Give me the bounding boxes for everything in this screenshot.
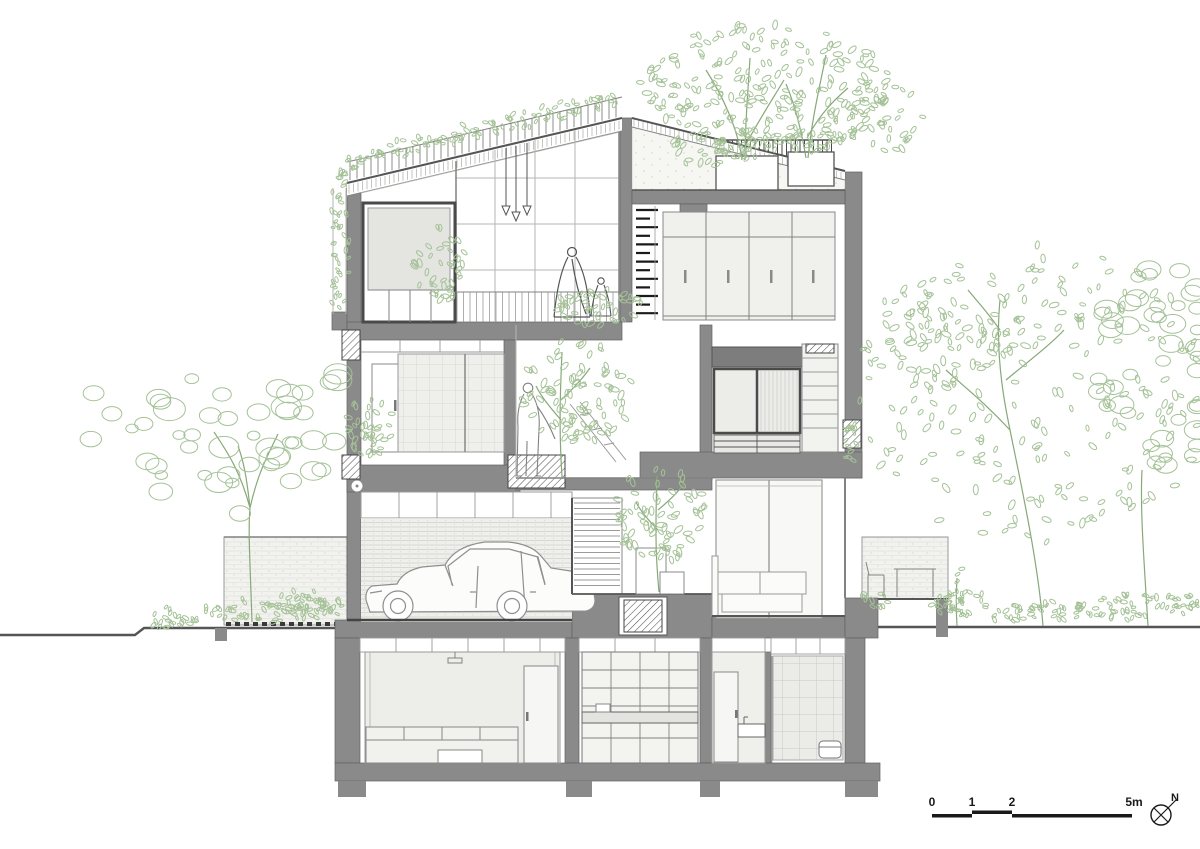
shelf-item <box>596 704 610 712</box>
door-handle <box>735 710 738 718</box>
scale-segment-3 <box>1012 814 1132 818</box>
garage-ceiling <box>361 492 572 518</box>
basement-wall-left <box>335 638 360 763</box>
basement-partition-2 <box>700 638 712 763</box>
bedroom2-ceiling-band <box>361 340 504 352</box>
planter-2 <box>788 152 834 186</box>
scale-bar: 0 1 2 5m <box>929 795 1143 818</box>
shelf-counter <box>582 712 698 723</box>
scale-label-1: 1 <box>969 795 976 809</box>
scale-label-5m: 5m <box>1125 795 1142 809</box>
right-tree-foliage <box>858 241 1200 546</box>
footing-2 <box>566 781 592 797</box>
toilet <box>819 741 841 758</box>
door-handle <box>526 712 529 721</box>
basement-partition-3 <box>765 652 771 763</box>
left-tree-foliage <box>80 364 352 521</box>
compass: N <box>1151 792 1179 825</box>
scale-label-0: 0 <box>929 795 936 809</box>
sapling-foliage <box>947 567 968 614</box>
window-frame-cut-2 <box>342 455 360 479</box>
patio-wall-right <box>862 537 948 599</box>
window-head-band <box>712 347 802 367</box>
green-roof-hatch <box>349 121 619 194</box>
skylight-cut <box>624 600 662 632</box>
scale-label-2: 2 <box>1009 795 1016 809</box>
pendant-mobiles <box>502 143 531 221</box>
door-handle <box>394 400 397 411</box>
slab-second-right <box>640 452 862 478</box>
slab-third-left <box>347 322 622 340</box>
slab-ground-right <box>712 616 845 638</box>
atrium-tree-upper-foliage <box>518 338 635 445</box>
basement-floor-slab <box>335 763 880 781</box>
tree-pot-2 <box>660 572 684 594</box>
footing-3 <box>700 781 720 797</box>
scale-segment-1 <box>932 814 972 818</box>
sofa <box>366 727 518 763</box>
sliding-panel-wall <box>398 354 504 452</box>
child-figure-outline <box>591 278 611 316</box>
basement-door-1 <box>524 666 558 763</box>
slab-ground-left <box>335 620 572 638</box>
slab-second-left <box>347 465 520 492</box>
fence-footing <box>215 628 227 641</box>
shelf-cabinet <box>802 344 838 452</box>
basement-partition-1 <box>565 638 579 763</box>
loft-window-pane <box>368 208 450 290</box>
basement <box>360 638 845 763</box>
building-section-drawing: 0 1 2 5m N <box>0 0 1200 849</box>
right-tree-trunk <box>946 290 1148 626</box>
footing-1 <box>338 781 366 797</box>
slab-notch <box>680 204 707 212</box>
window-frame-cut-1 <box>342 330 360 360</box>
basement-wall-right <box>845 638 865 763</box>
facade-cap <box>332 312 349 330</box>
footing-4 <box>845 781 878 797</box>
basement-door-2 <box>714 672 738 762</box>
ground-line-left <box>0 628 347 635</box>
scale-segment-2 <box>972 811 1012 815</box>
cabinet-cut <box>806 344 834 353</box>
slab-third-right <box>632 190 845 204</box>
window-blind <box>759 371 798 431</box>
drawing-sheet: 0 1 2 5m N <box>0 0 1200 849</box>
north-label: N <box>1171 792 1179 804</box>
